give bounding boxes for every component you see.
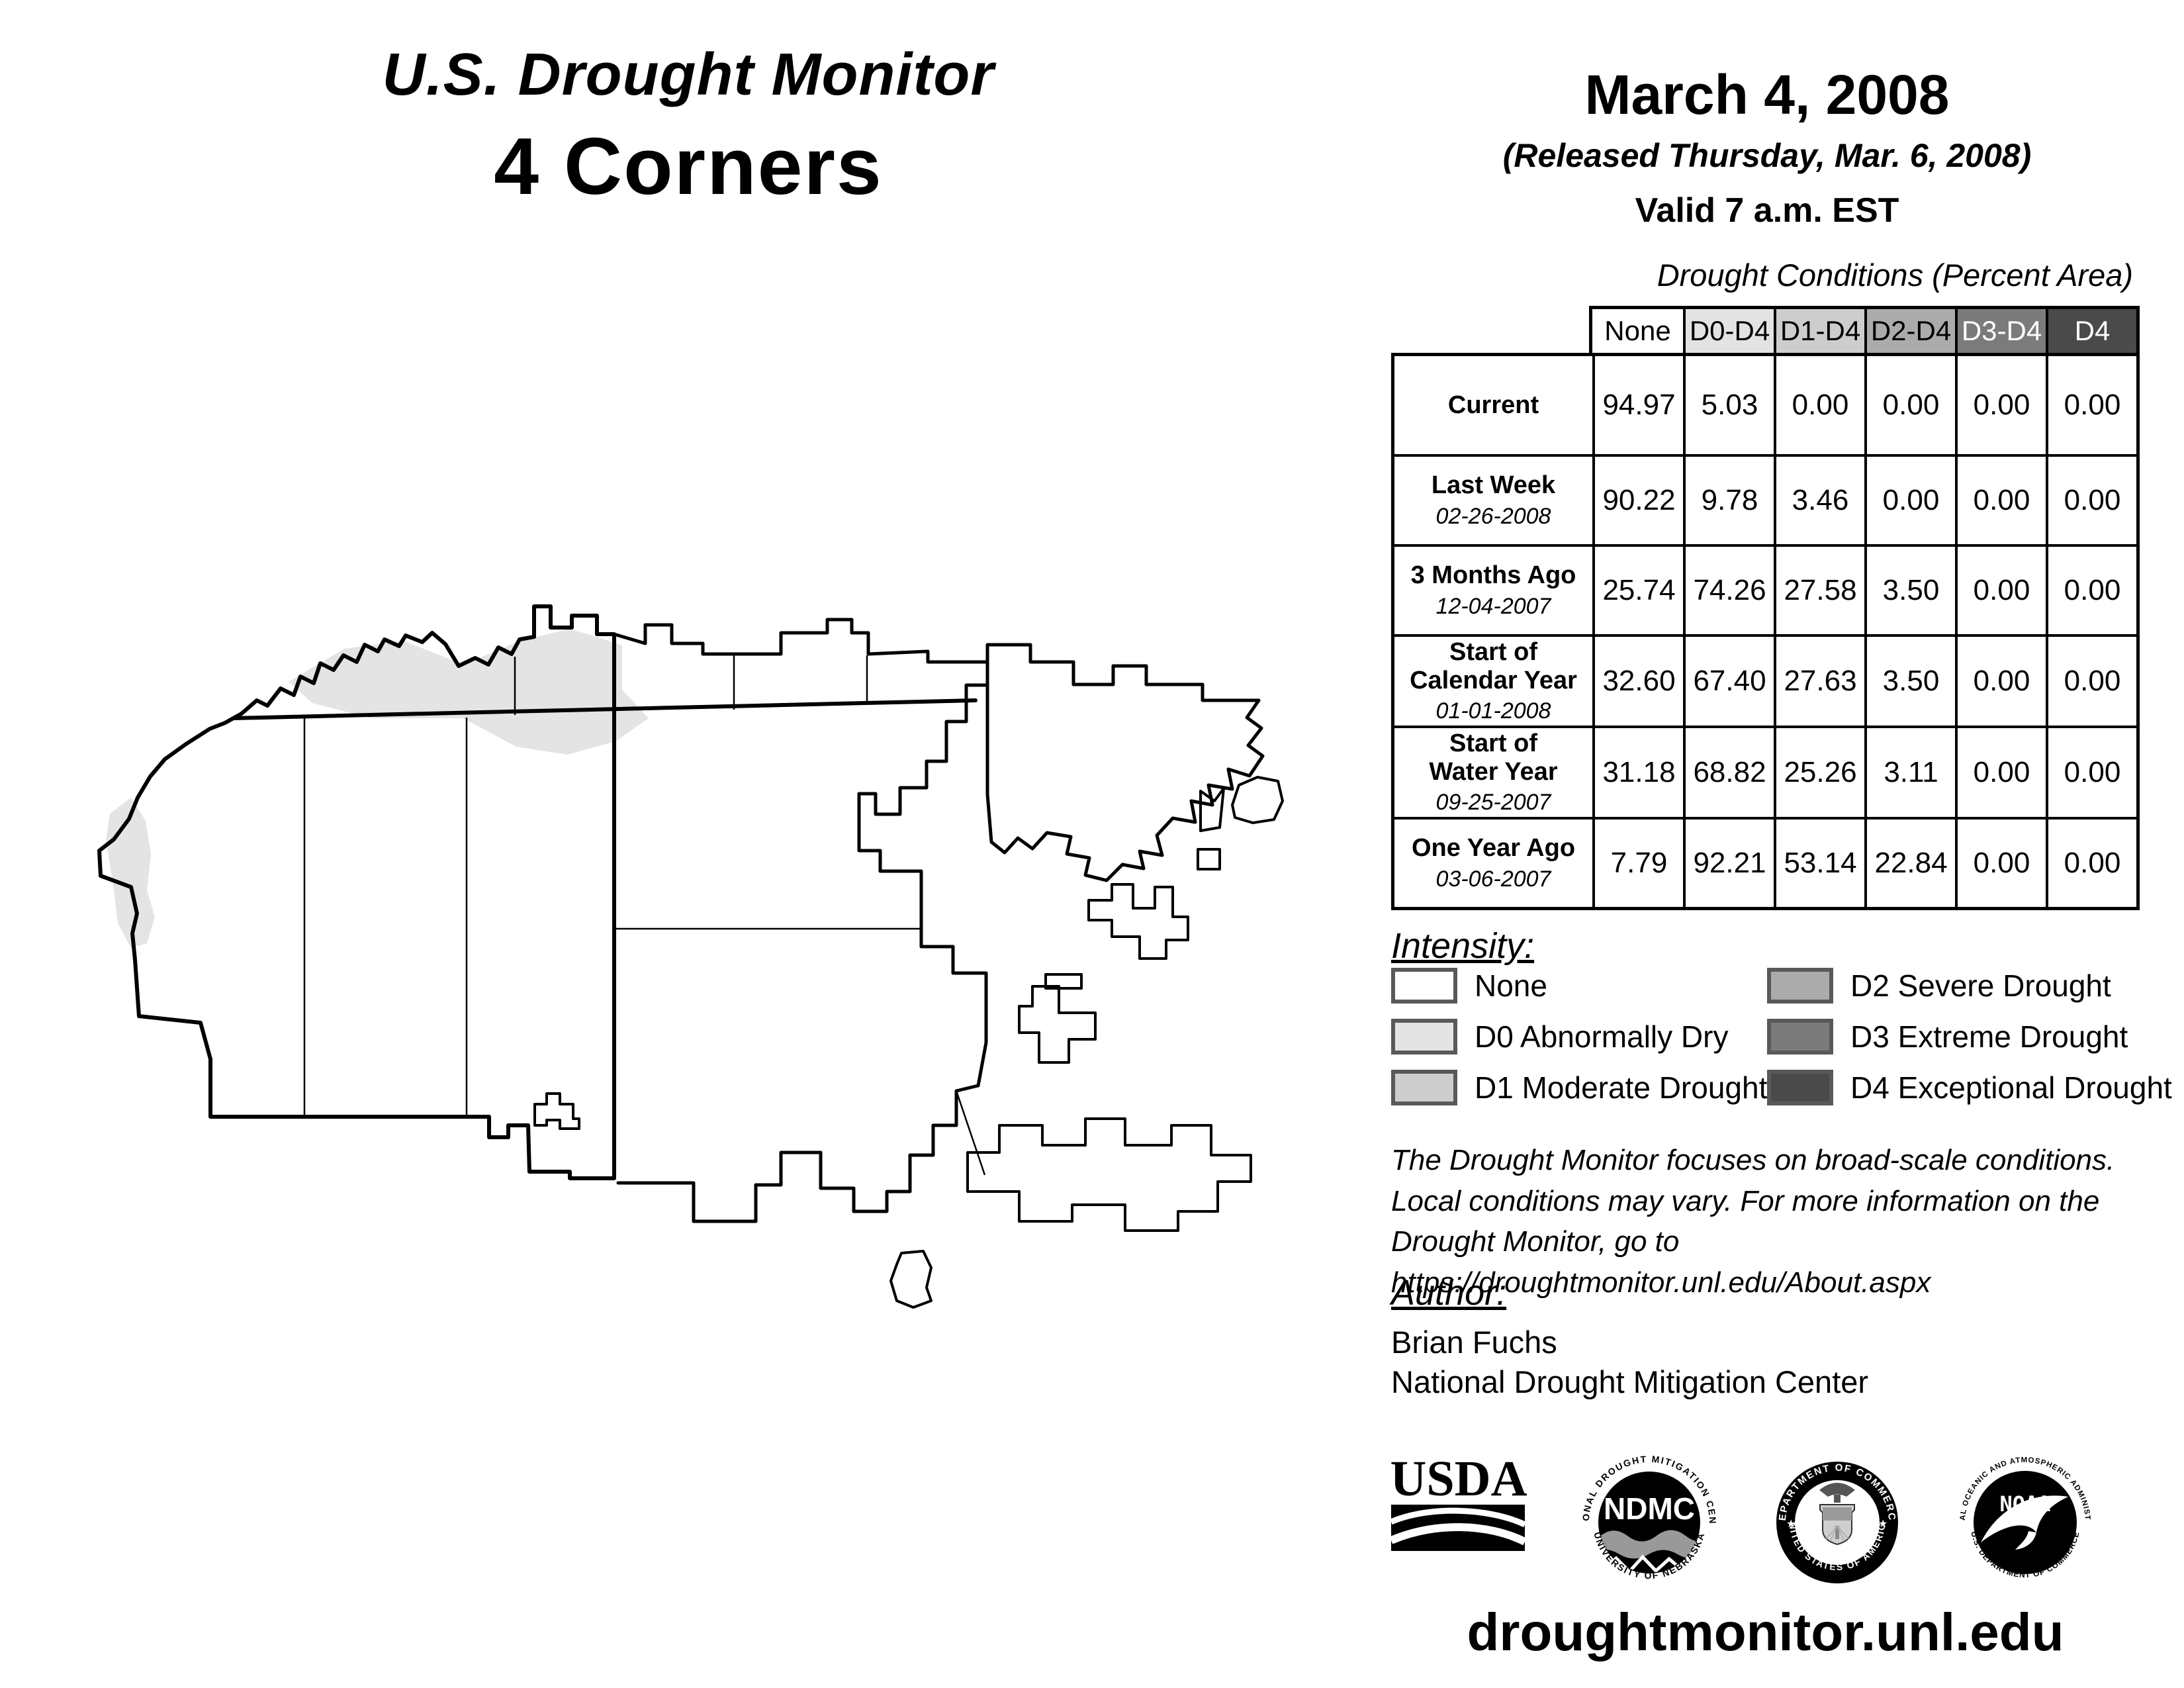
table-cell: 0.00 — [1955, 356, 2046, 454]
table-cell: 68.82 — [1683, 726, 1774, 817]
author-heading: Author: — [1391, 1272, 1506, 1313]
table-cell: 0.00 — [1864, 356, 1955, 454]
date-block: March 4, 2008 (Released Thursday, Mar. 6… — [1403, 63, 2131, 230]
table-cell: 3.50 — [1864, 544, 1955, 634]
map-island-cluster-c — [968, 1119, 1251, 1231]
department-of-commerce-seal: DEPARTMENT OF COMMERCE UNITED STATES OF … — [1768, 1427, 1907, 1618]
table-cell: 25.74 — [1592, 544, 1683, 634]
table-cell: 5.03 — [1683, 356, 1774, 454]
row-label-start-calendar-year: Start of Calendar Year 01-01-2008 — [1394, 634, 1592, 726]
table-cell: 0.00 — [1955, 454, 2046, 544]
table-cell: 27.58 — [1774, 544, 1864, 634]
ndmc-wordmark: NDMC — [1604, 1491, 1695, 1526]
legend-swatch-d4 — [1767, 1070, 1833, 1105]
intensity-heading: Intensity: — [1391, 925, 1534, 966]
author-organization: National Drought Mitigation Center — [1391, 1364, 1868, 1400]
table-cell: 0.00 — [2046, 726, 2136, 817]
table-cell: 0.00 — [1774, 356, 1864, 454]
table-cell: 27.63 — [1774, 634, 1864, 726]
legend-swatch-d0 — [1391, 1019, 1457, 1055]
col-header-d4: D4 — [2046, 309, 2136, 353]
table-cell: 0.00 — [1955, 726, 2046, 817]
table-cell: 0.00 — [1864, 454, 1955, 544]
table-cell: 25.26 — [1774, 726, 1864, 817]
region-title: 4 Corners — [172, 120, 1205, 212]
table-cell: 90.22 — [1592, 454, 1683, 544]
usda-wordmark: USDA — [1390, 1453, 1527, 1507]
doc-star-right: ★ — [1878, 1519, 1888, 1530]
page-title: U.S. Drought Monitor — [172, 41, 1205, 109]
table-cell: 0.00 — [2046, 544, 2136, 634]
row-label-one-year-ago: One Year Ago 03-06-2007 — [1394, 817, 1592, 907]
col-header-none: None — [1592, 309, 1683, 353]
row-label-start-water-year: Start of Water Year 09-25-2007 — [1394, 726, 1592, 817]
legend-swatch-none — [1391, 968, 1457, 1004]
table-cell: 7.79 — [1592, 817, 1683, 907]
map-island-cluster-b — [1019, 986, 1095, 1062]
table-cell: 0.00 — [2046, 817, 2136, 907]
noaa-logo: NATIONAL OCEANIC AND ATMOSPHERIC ADMINIS… — [1956, 1427, 2095, 1618]
table-cell: 32.60 — [1592, 634, 1683, 726]
table-cell: 94.97 — [1592, 356, 1683, 454]
table-cell: 74.26 — [1683, 544, 1774, 634]
map-island-square — [1198, 849, 1220, 869]
table-cell: 53.14 — [1774, 817, 1864, 907]
released-date: (Released Thursday, Mar. 6, 2008) — [1403, 136, 2131, 175]
col-header-d0d4: D0-D4 — [1683, 309, 1774, 353]
table-cell: 0.00 — [2046, 454, 2136, 544]
row-label-3-months-ago: 3 Months Ago 12-04-2007 — [1394, 544, 1592, 634]
drought-monitor-report: U.S. Drought Monitor 4 Corners March 4, … — [0, 0, 2184, 1688]
legend-swatch-d3 — [1767, 1019, 1833, 1055]
author-name: Brian Fuchs — [1391, 1324, 1557, 1360]
doc-star-left: ★ — [1786, 1519, 1796, 1530]
legend-item-none: None — [1391, 968, 1547, 1004]
table-cell: 0.00 — [2046, 634, 2136, 726]
table-cell: 3.46 — [1774, 454, 1864, 544]
legend-item-d1: D1 Moderate Drought — [1391, 1070, 1767, 1105]
table-cell: 3.11 — [1864, 726, 1955, 817]
title-block: U.S. Drought Monitor 4 Corners — [172, 41, 1205, 212]
table-cell: 9.78 — [1683, 454, 1774, 544]
map-date: March 4, 2008 — [1403, 63, 2131, 127]
row-label-current: Current — [1394, 356, 1592, 454]
legend-item-d4: D4 Exceptional Drought — [1767, 1070, 2172, 1105]
table-cell: 31.18 — [1592, 726, 1683, 817]
table-cell: 22.84 — [1864, 817, 1955, 907]
table-cell: 3.50 — [1864, 634, 1955, 726]
ndmc-logo: NATIONAL DROUGHT MITIGATION CENTER NDMC … — [1580, 1427, 1719, 1618]
valid-time: Valid 7 a.m. EST — [1403, 191, 2131, 230]
disclaimer-text: The Drought Monitor focuses on broad-sca… — [1391, 1140, 2184, 1303]
col-header-d1d4: D1-D4 — [1774, 309, 1864, 353]
row-label-last-week: Last Week 02-26-2008 — [1394, 454, 1592, 544]
drought-conditions-table: Current 94.97 5.03 0.00 0.00 0.00 0.00 L… — [1391, 353, 2140, 910]
table-caption: Drought Conditions (Percent Area) — [1391, 257, 2133, 293]
noaa-wordmark: NOAA — [1999, 1491, 2050, 1517]
map-region-eastcentral — [614, 929, 986, 1221]
table-cell: 0.00 — [2046, 356, 2136, 454]
table-cell: 67.40 — [1683, 634, 1774, 726]
legend-item-d2: D2 Severe Drought — [1767, 968, 2111, 1004]
table-header-row: None D0-D4 D1-D4 D2-D4 D3-D4 D4 — [1589, 306, 2140, 356]
map-region-northcentral — [614, 620, 987, 929]
table-cell: 0.00 — [1955, 634, 2046, 726]
legend-swatch-d1 — [1391, 1070, 1457, 1105]
table-cell: 0.00 — [1955, 544, 2046, 634]
usda-logo: USDA — [1388, 1453, 1529, 1556]
legend-item-d0: D0 Abnormally Dry — [1391, 1019, 1728, 1055]
website-url: droughtmonitor.unl.edu — [1391, 1602, 2140, 1663]
legend-swatch-d2 — [1767, 968, 1833, 1004]
four-corners-map — [79, 549, 1363, 1390]
table-cell: 92.21 — [1683, 817, 1774, 907]
col-header-d3d4: D3-D4 — [1955, 309, 2046, 353]
legend-item-d3: D3 Extreme Drought — [1767, 1019, 2128, 1055]
col-header-d2d4: D2-D4 — [1864, 309, 1955, 353]
table-cell: 0.00 — [1955, 817, 2046, 907]
